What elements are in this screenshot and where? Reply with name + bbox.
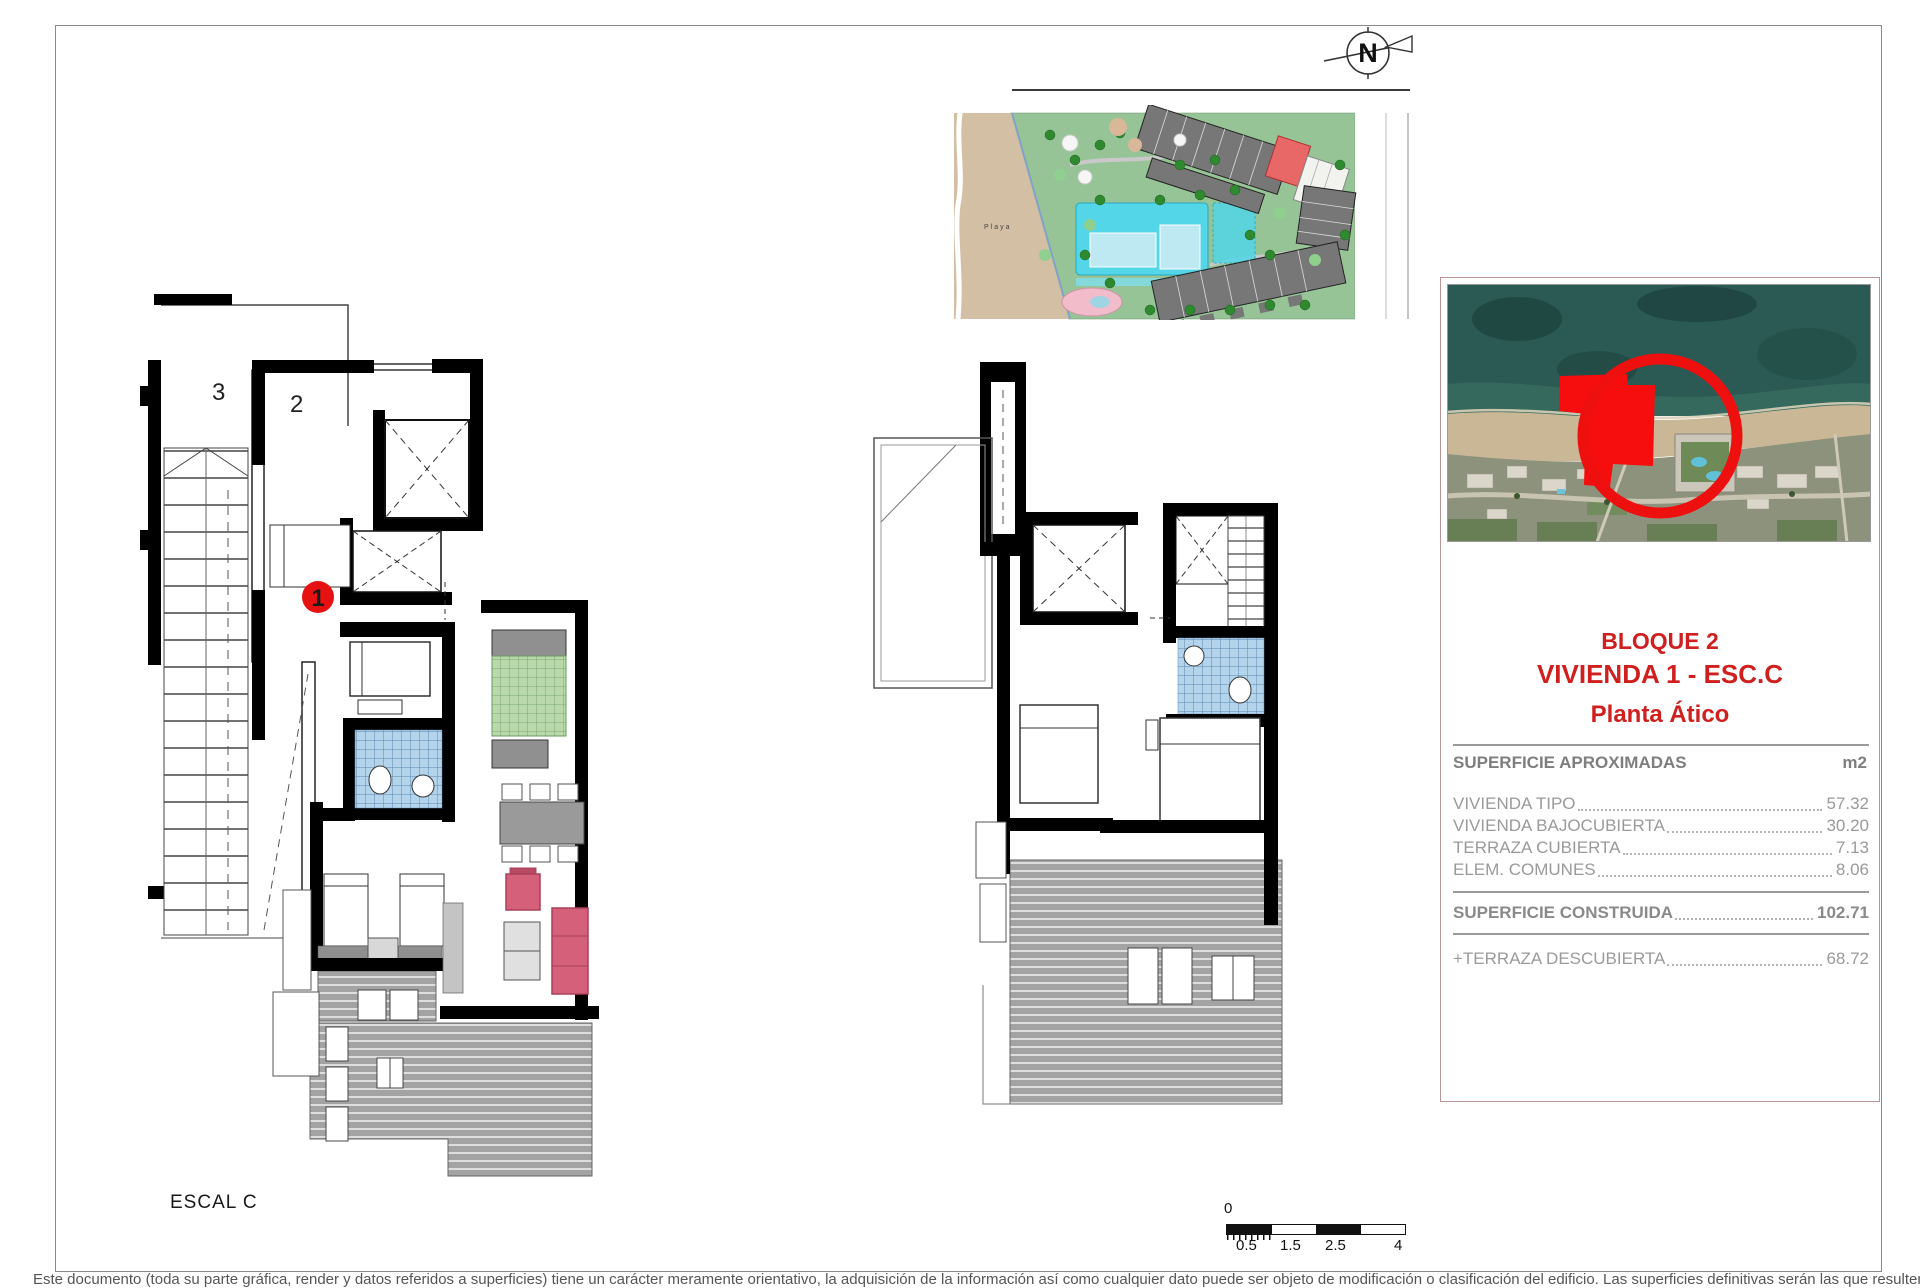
- bathroom-tiles: [355, 730, 442, 808]
- scale-bar: 0 0.5 1.5 2.5 4: [1222, 1200, 1422, 1254]
- header-label: SUPERFICIE APROXIMADAS: [1453, 753, 1687, 773]
- pool-inner: [1090, 233, 1156, 267]
- table-row: VIVIENDA TIPO 57.32: [1453, 793, 1869, 815]
- wall: [1100, 820, 1278, 833]
- wall: [997, 556, 1010, 832]
- scale-segment: [1227, 1225, 1272, 1234]
- scale-origin: 0: [1224, 1200, 1232, 1217]
- north-label: N: [1358, 38, 1378, 68]
- wall: [310, 802, 323, 960]
- beach-label: Playa: [984, 224, 1012, 231]
- scale-tick: 1.5: [1280, 1237, 1301, 1254]
- dot-leader: [1675, 918, 1813, 920]
- kitchen-tiles: [492, 656, 566, 736]
- scale-tick: 2.5: [1325, 1237, 1346, 1254]
- header-unit: m2: [1842, 753, 1867, 773]
- coffee-table: [504, 922, 540, 980]
- planter: [283, 890, 311, 990]
- wall: [343, 718, 455, 730]
- armchair: [506, 868, 540, 910]
- wall: [1166, 626, 1278, 638]
- table-row: TERRAZA CUBIERTA 7.13: [1453, 837, 1869, 859]
- planter: [976, 822, 1006, 878]
- toilet: [1229, 677, 1251, 703]
- deck-furniture: [1128, 948, 1254, 1004]
- info-panel: BLOQUE 2 VIVIENDA 1 - ESC.C Planta Ático…: [1440, 277, 1880, 1102]
- wall: [1020, 612, 1138, 625]
- wall: [1020, 512, 1138, 525]
- window: [374, 364, 432, 370]
- dot-leader: [1667, 964, 1822, 966]
- unit-number-2: 2: [290, 391, 303, 418]
- area-table: SUPERFICIE APROXIMADAS m2 VIVIENDA TIPO …: [1453, 744, 1869, 970]
- wall: [252, 590, 265, 740]
- row-label: TERRAZA CUBIERTA: [1453, 837, 1621, 859]
- scale-tick: 0.5: [1236, 1237, 1257, 1254]
- building-cluster-right: [1296, 186, 1356, 251]
- row-value: 68.72: [1826, 948, 1869, 970]
- terrace-fold: [881, 445, 956, 522]
- kitchen-counter: [492, 630, 566, 656]
- wall: [310, 958, 451, 971]
- wall: [140, 386, 148, 406]
- sink: [1184, 646, 1204, 666]
- site-margin: [1355, 113, 1413, 319]
- dot-leader: [1623, 853, 1832, 855]
- table-row: VIVIENDA BAJOCUBIERTA 30.20: [1453, 815, 1869, 837]
- toilet: [369, 766, 391, 794]
- wall: [1163, 503, 1278, 516]
- wall: [470, 359, 483, 529]
- dot-leader: [1578, 809, 1823, 811]
- plan-sheet: Playa: [0, 0, 1920, 1280]
- wardrobe: [270, 525, 350, 587]
- floorplan-upper: [860, 360, 1290, 1140]
- wall: [440, 1006, 599, 1019]
- planter: [443, 903, 463, 993]
- title-line-2: VIVIENDA 1 - ESC.C: [1441, 657, 1879, 692]
- kitchen-cabinet: [492, 740, 548, 768]
- terrace-outline: [881, 445, 985, 681]
- pond-water: [1090, 296, 1110, 308]
- row-value: 7.13: [1836, 837, 1869, 859]
- row-value: 30.20: [1826, 815, 1869, 837]
- wall: [997, 818, 1113, 831]
- terrace-outline: [983, 985, 1010, 1104]
- wall: [343, 718, 355, 820]
- aerial-photo: [1447, 284, 1871, 542]
- wall: [373, 518, 483, 531]
- row-label: ELEM. COMUNES: [1453, 859, 1596, 881]
- wall: [154, 294, 232, 305]
- scale-segment: [1317, 1225, 1362, 1234]
- row-label: VIVIENDA BAJOCUBIERTA: [1453, 815, 1665, 837]
- wall: [140, 530, 148, 550]
- table-extra-row: +TERRAZA DESCUBIERTA 68.72: [1453, 935, 1869, 970]
- site-plan: Playa: [950, 105, 1415, 320]
- sofa: [552, 908, 588, 994]
- table-total-row: SUPERFICIE CONSTRUIDA 102.71: [1453, 893, 1869, 933]
- deck-table: [377, 1058, 403, 1088]
- bed: [400, 874, 444, 946]
- wall: [1163, 503, 1176, 643]
- north-arrow-icon: N: [1316, 14, 1426, 92]
- rooflight: [353, 531, 441, 592]
- title-line-3: Planta Ático: [1441, 699, 1879, 731]
- title-line-1: BLOQUE 2: [1441, 626, 1879, 657]
- sun-loungers: [326, 1027, 348, 1141]
- row-label: +TERRAZA DESCUBIERTA: [1453, 948, 1665, 970]
- divider-line: [1012, 89, 1410, 91]
- plan-caption: ESCAL C: [170, 1192, 258, 1214]
- table-row: ELEM. COMUNES 8.06: [1453, 859, 1869, 881]
- terrace-deck: [310, 1023, 592, 1176]
- wall: [481, 600, 588, 613]
- row-label: VIVIENDA TIPO: [1453, 793, 1576, 815]
- scale-segment: [1361, 1225, 1405, 1234]
- rooflight: [385, 420, 469, 518]
- wall: [343, 808, 455, 820]
- bed: [324, 874, 368, 946]
- wall: [310, 808, 355, 821]
- wall: [340, 622, 442, 637]
- unit-number-3: 3: [212, 379, 225, 406]
- rooflight: [1176, 516, 1228, 584]
- row-value: 8.06: [1836, 859, 1869, 881]
- rooflight: [1033, 525, 1125, 612]
- planter: [273, 992, 319, 1076]
- bed: [1146, 718, 1260, 822]
- unit-number-1: 1: [311, 585, 324, 612]
- scale-tick: 4: [1394, 1237, 1402, 1254]
- panel-title: BLOQUE 2 VIVIENDA 1 - ESC.C Planta Ático: [1441, 626, 1879, 732]
- scale-segment: [1272, 1225, 1317, 1234]
- wall: [252, 360, 374, 465]
- terrace-outline: [874, 438, 992, 688]
- bed: [350, 642, 430, 714]
- wall: [340, 592, 452, 605]
- row-value: 102.71: [1817, 902, 1869, 924]
- area-table-header: SUPERFICIE APROXIMADAS m2: [1453, 746, 1869, 777]
- dining-set: [500, 784, 584, 862]
- wall: [373, 410, 385, 531]
- floorplan-escal-c: 3 2 1: [140, 290, 620, 1195]
- wall: [148, 360, 161, 665]
- dot-leader: [1598, 875, 1832, 877]
- scale-bar-segments: [1226, 1224, 1406, 1235]
- wall: [1020, 512, 1033, 625]
- bed: [1020, 705, 1098, 803]
- dot-leader: [1667, 831, 1823, 833]
- row-label: SUPERFICIE CONSTRUIDA: [1453, 902, 1673, 924]
- sink: [412, 775, 434, 797]
- row-value: 57.32: [1826, 793, 1869, 815]
- pool-inner: [1160, 225, 1200, 269]
- planter: [980, 884, 1006, 942]
